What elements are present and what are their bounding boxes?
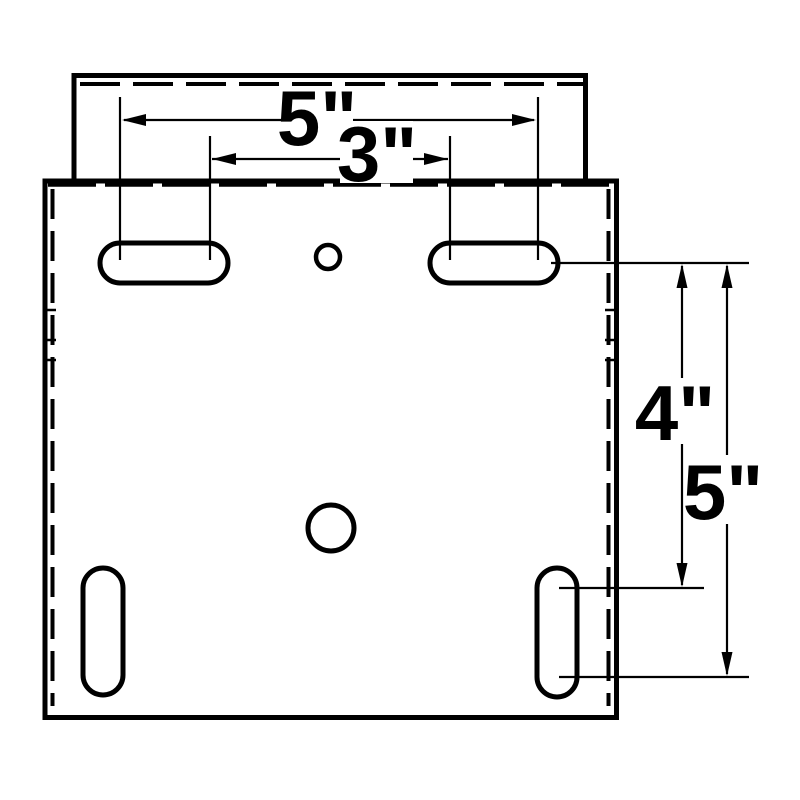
arrowhead-left bbox=[122, 114, 146, 126]
holes-and-slots bbox=[83, 243, 577, 697]
arrowhead-up bbox=[677, 264, 688, 288]
plate-outline bbox=[45, 181, 617, 718]
dimension-labels: 5" 3" 4" 5" bbox=[277, 74, 763, 536]
arrowhead-down bbox=[722, 652, 733, 676]
part-outline bbox=[45, 76, 617, 718]
dim-label-right-upper: 4" bbox=[635, 369, 715, 457]
arrowhead-right bbox=[512, 114, 536, 126]
dim-label-top-inner: 3" bbox=[337, 110, 417, 198]
bracket-technical-drawing: 5" 3" 4" 5" bbox=[0, 0, 800, 800]
pilot-hole bbox=[316, 245, 340, 269]
bottom-left-slot bbox=[83, 568, 123, 695]
arrowhead-left bbox=[212, 153, 236, 165]
dim-label-right-lower: 5" bbox=[683, 448, 763, 536]
arrowhead-right bbox=[424, 153, 448, 165]
arrowhead-up bbox=[722, 264, 733, 288]
arrowhead-down bbox=[677, 563, 688, 587]
hidden-edges bbox=[48, 84, 613, 706]
center-hole bbox=[308, 505, 354, 551]
